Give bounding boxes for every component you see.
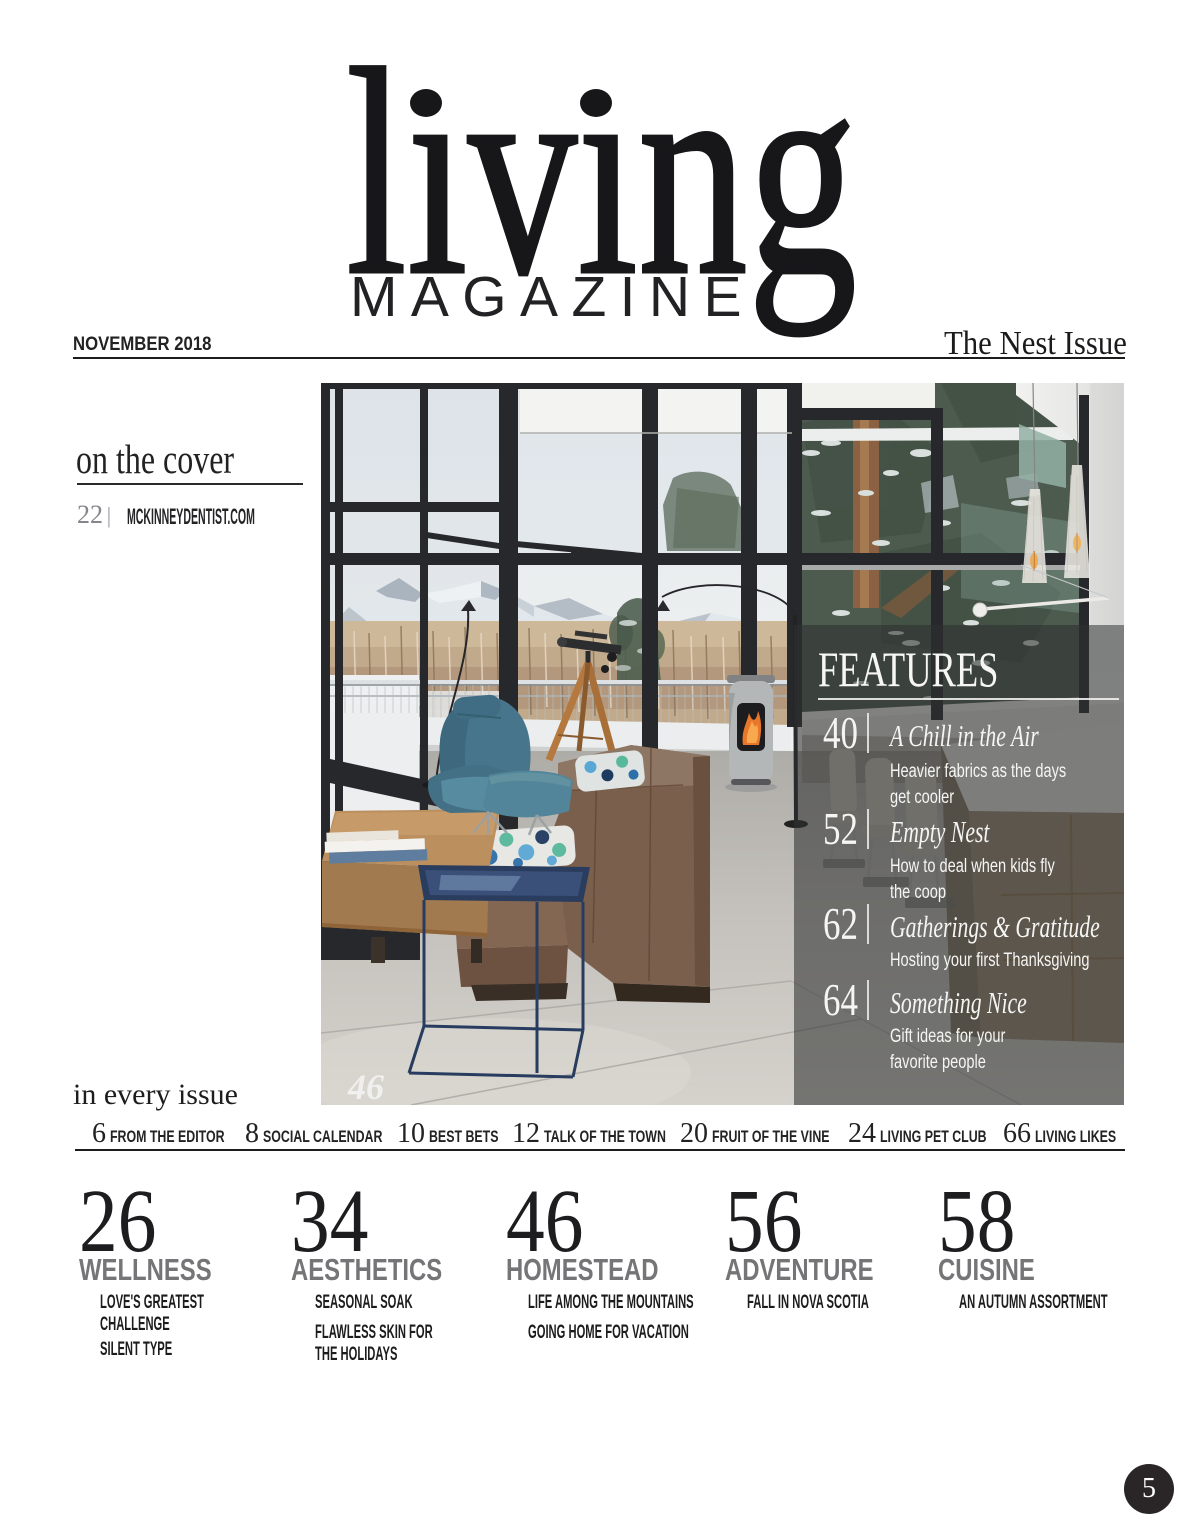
svg-text:How to deal when kids fly: How to deal when kids fly <box>890 854 1055 877</box>
svg-text:MAGAZINE: MAGAZINE <box>350 265 755 329</box>
svg-text:Gift ideas for your: Gift ideas for your <box>890 1024 1006 1047</box>
svg-text:A Chill in the Air: A Chill in the Air <box>888 718 1039 753</box>
svg-text:Something Nice: Something Nice <box>890 985 1027 1020</box>
svg-text:get cooler: get cooler <box>890 785 954 808</box>
svg-text:Gatherings & Gratitude: Gatherings & Gratitude <box>890 909 1100 944</box>
svg-text:Heavier fabrics as the days: Heavier fabrics as the days <box>890 759 1066 782</box>
svg-text:Empty Nest: Empty Nest <box>889 814 990 849</box>
svg-text:favorite people: favorite people <box>890 1050 986 1073</box>
svg-text:52: 52 <box>823 803 858 854</box>
svg-text:46: 46 <box>347 1067 384 1105</box>
svg-text:the coop: the coop <box>890 880 946 903</box>
svg-text:62: 62 <box>823 898 858 949</box>
svg-text:64: 64 <box>823 974 858 1025</box>
svg-text:40: 40 <box>823 707 858 758</box>
svg-text:FEATURES: FEATURES <box>818 643 998 698</box>
svg-text:Hosting your first Thanksgivin: Hosting your first Thanksgiving <box>890 948 1090 971</box>
